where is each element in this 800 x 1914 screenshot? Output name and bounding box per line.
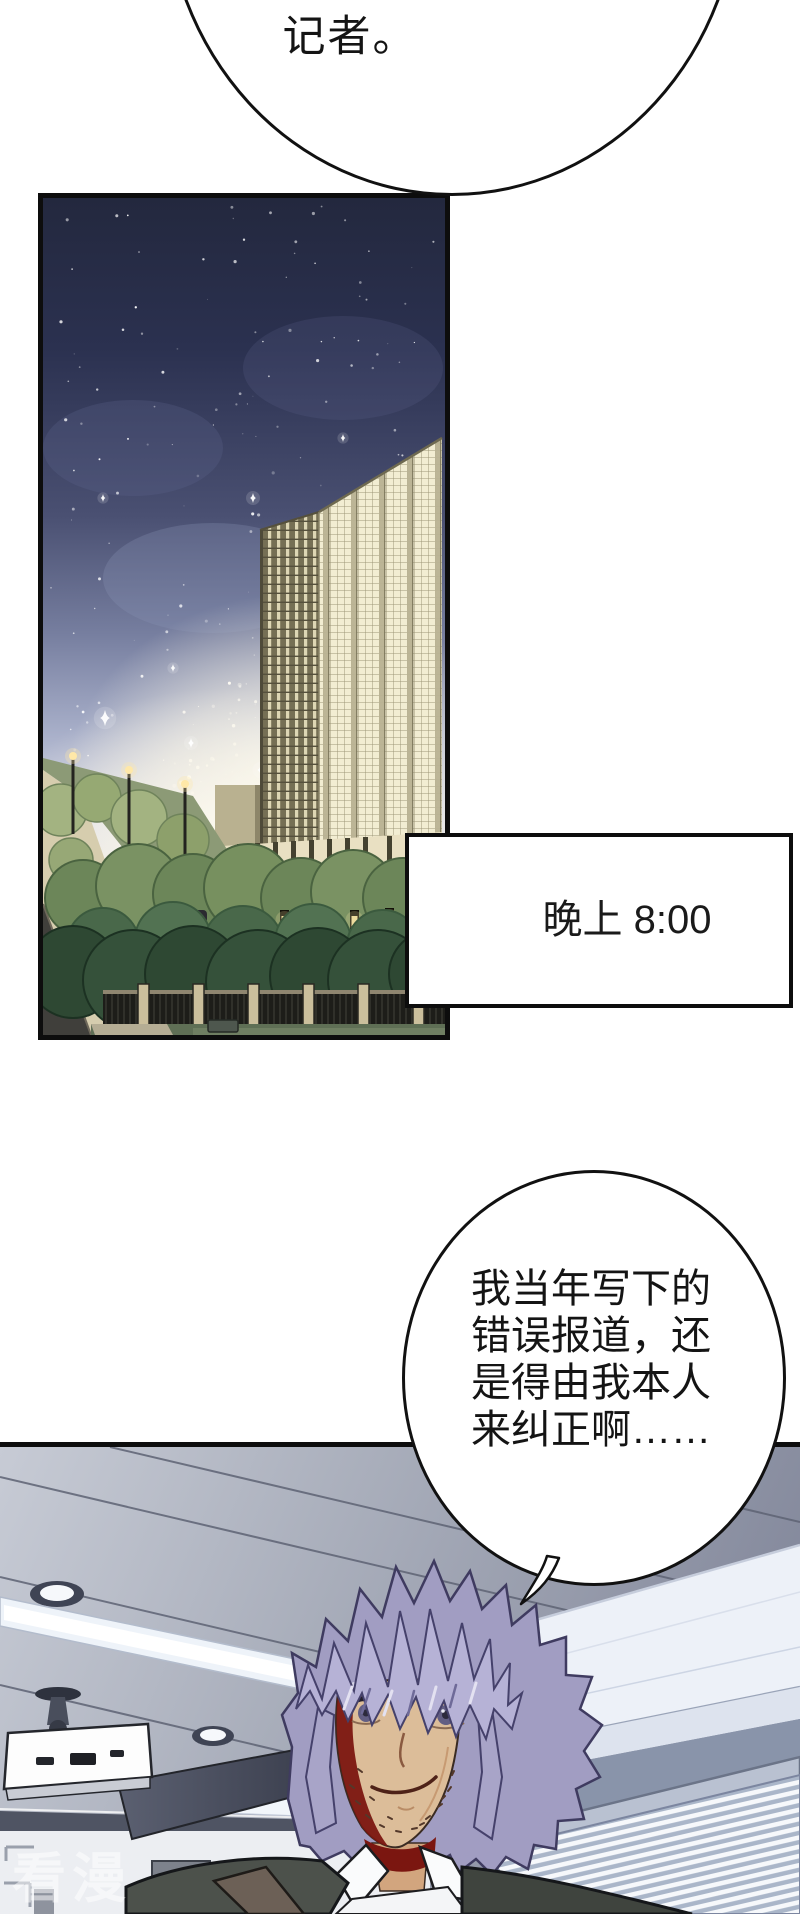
fence: [91, 984, 445, 1035]
night-city-scene: [43, 198, 445, 1035]
comic-page: 记者。: [0, 0, 800, 1914]
speech-bubble-top-text: 记者。: [240, 2, 460, 64]
caption-box-time: 晚上 8:00: [405, 833, 793, 1008]
thought-line-4: 来纠正啊……: [402, 1407, 780, 1454]
bubble-tail: [503, 1548, 575, 1620]
thought-line-3: 是得由我本人: [402, 1360, 780, 1407]
speech-bubble-thought-text: 我当年写下的 错误报道，还 是得由我本人 来纠正啊……: [402, 1266, 780, 1454]
watermark: 看漫: [12, 1834, 132, 1913]
panel-night-city: [38, 193, 450, 1040]
caption-time-text: 晚上 8:00: [543, 887, 712, 945]
thought-line-2: 错误报道，还: [402, 1313, 780, 1360]
thought-line-1: 我当年写下的: [402, 1266, 780, 1313]
